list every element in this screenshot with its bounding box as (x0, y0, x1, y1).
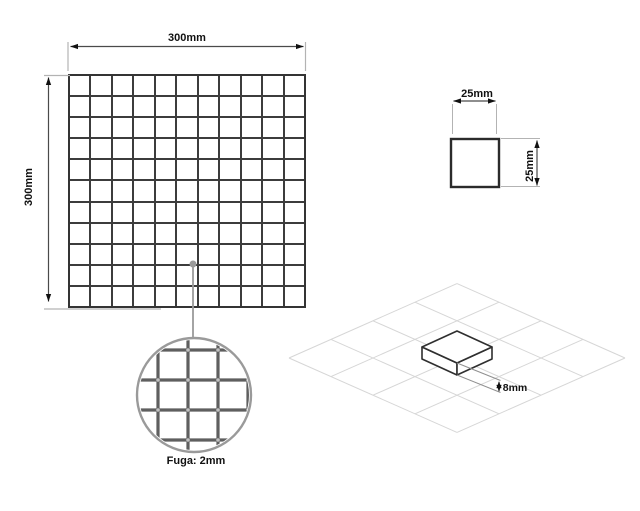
detail-grout-intersection-dot (156, 408, 160, 412)
grout-detail-label: Fuga: 2mm (167, 455, 226, 467)
spec-drawing-canvas: 300mm 300mm 25mm 25mm 8mm Fuga: 2mm (0, 0, 640, 511)
detail-grout-intersection-dot (216, 348, 220, 352)
sheet-height-label: 300mm (23, 168, 35, 206)
detail-grout-intersection-dot (186, 348, 190, 352)
detail-grout-intersection-dot (186, 408, 190, 412)
detail-grout-intersection-dot (216, 378, 220, 382)
detail-grout-intersection-dot (186, 378, 190, 382)
tile-thickness-label: 8mm (503, 382, 528, 394)
tile-width-label: 25mm (461, 88, 493, 100)
detail-callout (135, 261, 253, 455)
detail-grout-intersection-dot (246, 438, 250, 442)
detail-grout-intersection-dot (216, 408, 220, 412)
detail-circle (137, 338, 251, 452)
detail-grout-intersection-dot (186, 438, 190, 442)
detail-grout-intersection-dot (156, 378, 160, 382)
lineart-layer (0, 0, 640, 511)
detail-leader-dot (190, 261, 197, 268)
detail-grout-intersection-dot (216, 438, 220, 442)
single-tile-square (451, 139, 499, 187)
sheet-dimensions (44, 42, 306, 309)
tile-height-label: 25mm (524, 150, 536, 182)
detail-grout-intersection-dot (246, 348, 250, 352)
sheet-width-label: 300mm (168, 32, 206, 44)
